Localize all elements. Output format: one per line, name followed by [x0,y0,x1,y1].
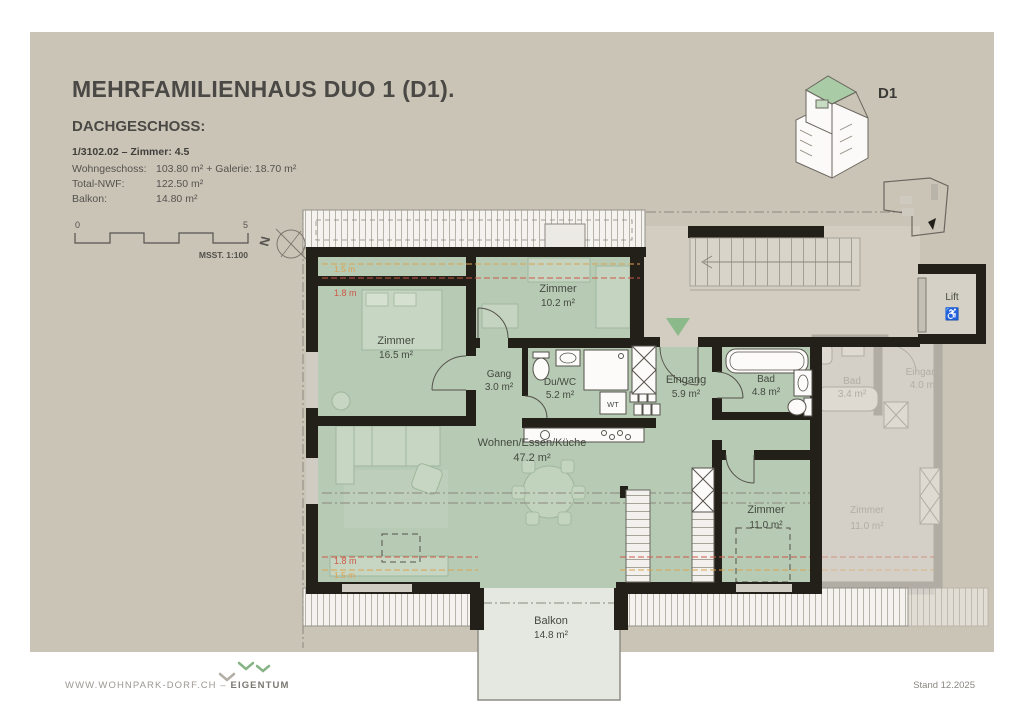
height-label-18-bottom: 1.8 m [334,556,357,566]
info-row-wohngeschoss: Wohngeschoss:103.80 m² + Galerie: 18.70 … [72,163,296,175]
info-value: 14.80 m² [156,193,197,205]
galerie-steps [630,392,660,415]
key-plan-unit-label: D1 [878,85,897,102]
neighbor-eingang-area: 4.0 m² [910,380,939,391]
chair [332,392,350,410]
info-label: Wohngeschoss: [72,163,156,175]
galerie-stair [692,512,714,582]
duwc-label: Du/WC [544,377,576,388]
floorplan-page: Bad 3.4 m² Eingang 4.0 m² Zimmer 11.0 m² [0,0,1024,715]
window [306,458,318,504]
zimmer1-area: 16.5 m² [379,350,414,361]
scale-start: 0 [75,220,80,230]
footer-website: WWW.WOHNPARK-DORF.CH – EIGENTUM [65,680,289,691]
sink [794,370,812,396]
neighbor-bad-label: Bad [843,376,861,387]
zimmer1-label: Zimmer [377,335,415,347]
footer-date: Stand 12.2025 [913,680,975,691]
zimmer3-label: Zimmer [747,504,785,516]
eingang-area: 5.9 m² [672,389,701,400]
window [342,584,412,592]
info-label: Total-NWF: [72,178,156,190]
lift: Lift ♿ [918,264,986,344]
shaft [632,346,656,394]
height-label-15-bottom: 1.5 m [334,570,355,580]
building-axonometric: D1 [796,76,897,178]
zimmer2-area: 10.2 m² [541,298,576,309]
bird-chevrons-icon [220,663,269,680]
north-letter: N [256,235,273,248]
wohnen-label: Wohnen/Essen/Küche [478,437,587,449]
height-label-15-top: 1.5 m [334,264,355,274]
eingang-label: Eingang [666,374,706,386]
info-row-balkon: Balkon:14.80 m² [72,193,197,205]
duwc-area: 5.2 m² [546,390,575,401]
footer-website-url: WWW.WOHNPARK-DORF.CH – [65,680,227,691]
galerie-stair [626,490,650,582]
shower [584,350,628,390]
page-subtitle: DACHGESCHOSS: [72,118,205,135]
lift-door [918,278,926,332]
washer-tower-label: WT [607,400,619,409]
toilet [788,399,806,415]
gang-label: Gang [487,369,511,380]
zimmer3-area: 11.0 m² [749,520,783,531]
footer-ownership-tag: EIGENTUM [231,680,290,691]
north-arrow-icon: N [256,229,306,259]
wheelchair-icon: ♿ [945,307,960,321]
neighbor-apartment: Bad 3.4 m² Eingang 4.0 m² Zimmer 11.0 m² [812,333,988,626]
info-row-total-nwf: Total-NWF:122.50 m² [72,178,203,190]
toilet-tank [533,352,549,358]
scale-end: 5 [243,220,248,230]
zimmer2-label: Zimmer [539,283,577,295]
window [736,584,792,592]
neighbor-bad-area: 3.4 m² [838,389,867,400]
height-label-18-top: 1.8 m [334,288,357,298]
info-label: Balkon: [72,193,156,205]
info-value: 122.50 m² [156,178,203,190]
stair-corridor [644,212,920,347]
neighbor-eingang-label: Eingang [906,367,943,378]
floor-plan-drawing: Bad 3.4 m² Eingang 4.0 m² Zimmer 11.0 m² [0,0,1024,715]
shaft [692,468,714,512]
balkon-label: Balkon [534,615,568,627]
gang-area: 3.0 m² [485,382,514,393]
lift-label: Lift [945,292,959,303]
wohnen-area: 47.2 m² [513,452,551,464]
scale-bar: 0 5 MSST. 1:100 [75,220,248,260]
page-title: MEHRFAMILIENHAUS DUO 1 (D1). [72,76,455,103]
balkon-area: 14.8 m² [534,630,569,641]
info-value: 103.80 m² + Galerie: 18.70 m² [156,163,296,175]
dining-table [523,466,575,518]
window [306,352,318,408]
bad-label: Bad [757,374,775,385]
scale-caption: MSST. 1:100 [199,250,248,260]
bathtub [726,349,808,373]
unit-number: 1/3102.02 – Zimmer: 4.5 [72,146,189,158]
neighbor-zimmer-area: 11.0 m² [850,521,884,532]
neighbor-zimmer-label: Zimmer [850,505,885,516]
bad-area: 4.8 m² [752,387,781,398]
